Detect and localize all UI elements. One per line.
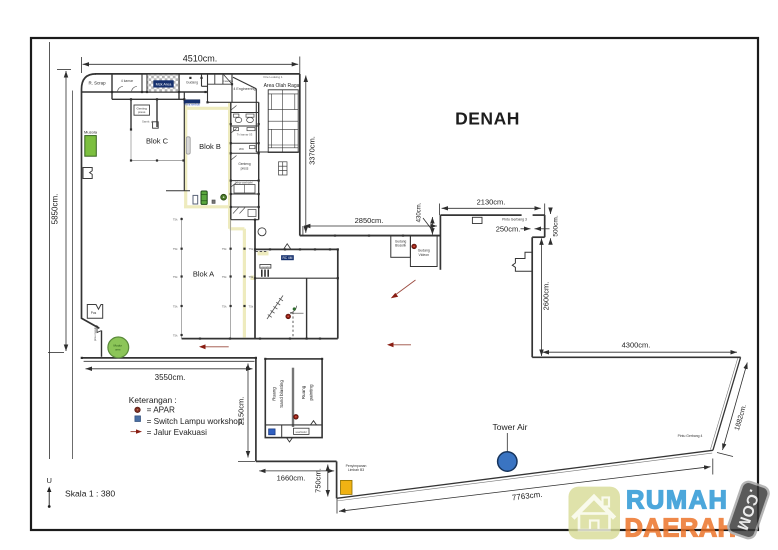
svg-text:4 Engineering: 4 Engineering	[233, 87, 255, 91]
svg-text:3550cm.: 3550cm.	[155, 373, 186, 382]
svg-text:T5k: T5k	[249, 247, 254, 251]
svg-text:430cm.: 430cm.	[417, 202, 423, 222]
svg-text:Area serbuk: Area serbuk	[184, 103, 200, 107]
svg-text:Videon: Videon	[419, 253, 430, 257]
svg-text:press: press	[241, 166, 249, 170]
svg-text:T5k: T5k	[222, 275, 227, 279]
svg-text:WC: WC	[239, 147, 245, 151]
svg-text:= Jalur Evakuasi: = Jalur Evakuasi	[147, 428, 207, 437]
svg-text:T5k: T5k	[173, 305, 178, 309]
svg-text:Meja washtafel: Meja washtafel	[235, 181, 253, 185]
svg-text:DAERAH: DAERAH	[625, 515, 737, 543]
svg-text:T5k: T5k	[249, 305, 254, 309]
svg-text:Mck Area: Mck Area	[156, 82, 173, 86]
svg-text:Ruang: Ruang	[301, 385, 306, 399]
svg-text:T5k: T5k	[222, 247, 227, 251]
svg-text:Gudang: Gudang	[186, 81, 198, 85]
svg-text:Limbah B3: Limbah B3	[348, 468, 364, 472]
svg-text:5850cm.: 5850cm.	[51, 194, 60, 225]
svg-text:Penyimpanan: Penyimpanan	[346, 464, 367, 468]
svg-text:DENAH: DENAH	[455, 109, 520, 129]
svg-text:Ruang: Ruang	[272, 387, 277, 401]
svg-text:U: U	[46, 476, 51, 485]
svg-text:Gudang: Gudang	[418, 249, 430, 253]
svg-text:Samb. pl: Samb. pl	[142, 120, 153, 124]
svg-text:Skala 1 : 380: Skala 1 : 380	[65, 489, 115, 499]
svg-text:2850cm.: 2850cm.	[355, 216, 384, 225]
svg-text:T5k: T5k	[173, 247, 178, 251]
svg-text:Biosolik: Biosolik	[395, 244, 406, 248]
svg-text:Blok C: Blok C	[146, 137, 169, 146]
svg-text:washtafel: washtafel	[296, 430, 307, 434]
svg-text:Pintu Gerbang 4: Pintu Gerbang 4	[678, 434, 703, 438]
svg-text:250cm.: 250cm.	[496, 225, 521, 234]
svg-text:T5k: T5k	[249, 275, 254, 279]
svg-text:500cm.: 500cm.	[553, 215, 560, 237]
svg-text:RUMAH: RUMAH	[626, 487, 728, 515]
svg-text:t.wudhu: t.wudhu	[223, 79, 233, 83]
svg-text:4510cm.: 4510cm.	[183, 54, 218, 64]
svg-text:T5k: T5k	[173, 218, 178, 222]
svg-text:750cm.: 750cm.	[314, 468, 323, 493]
svg-text:2130cm.: 2130cm.	[477, 198, 506, 207]
svg-text:3370cm.: 3370cm.	[308, 136, 317, 165]
svg-text:wastafel: wastafel	[261, 265, 270, 268]
svg-text:1660cm.: 1660cm.	[277, 474, 306, 483]
svg-text:4300cm.: 4300cm.	[622, 341, 651, 350]
svg-text:Tower Air: Tower Air	[493, 422, 528, 432]
svg-text:RC 4M: RC 4M	[282, 256, 292, 260]
svg-text:Fire Looking 1: Fire Looking 1	[263, 75, 282, 79]
svg-text:Keterangan :: Keterangan :	[129, 395, 177, 405]
svg-text:Blok B: Blok B	[199, 142, 221, 151]
svg-text:R. Scrap: R. Scrap	[88, 81, 106, 86]
svg-text:Musola: Musola	[84, 130, 98, 135]
svg-text:= Switch Lampu workshop: = Switch Lampu workshop	[147, 417, 243, 426]
svg-text:T5k: T5k	[173, 275, 178, 279]
svg-text:T5k: T5k	[173, 334, 178, 338]
svg-text:press: press	[138, 110, 146, 114]
svg-text:Pos: Pos	[91, 311, 97, 315]
svg-text:pintu masuk: pintu masuk	[93, 326, 97, 341]
svg-text:Area Olah Raga: Area Olah Raga	[264, 83, 300, 89]
svg-text:2600cm.: 2600cm.	[542, 282, 551, 311]
svg-text:arm: arm	[115, 347, 121, 351]
svg-text:= APAR: = APAR	[147, 406, 175, 415]
svg-text:Sand blasting: Sand blasting	[279, 380, 284, 408]
svg-text:Pintu Gerbang 3: Pintu Gerbang 3	[502, 217, 527, 221]
svg-text:Blok A: Blok A	[193, 270, 214, 279]
svg-text:4 kamar: 4 kamar	[121, 79, 134, 83]
svg-text:T5k: T5k	[222, 305, 227, 309]
svg-text:Tv kamar 03: Tv kamar 03	[237, 133, 253, 137]
svg-text:painting: painting	[309, 384, 314, 401]
